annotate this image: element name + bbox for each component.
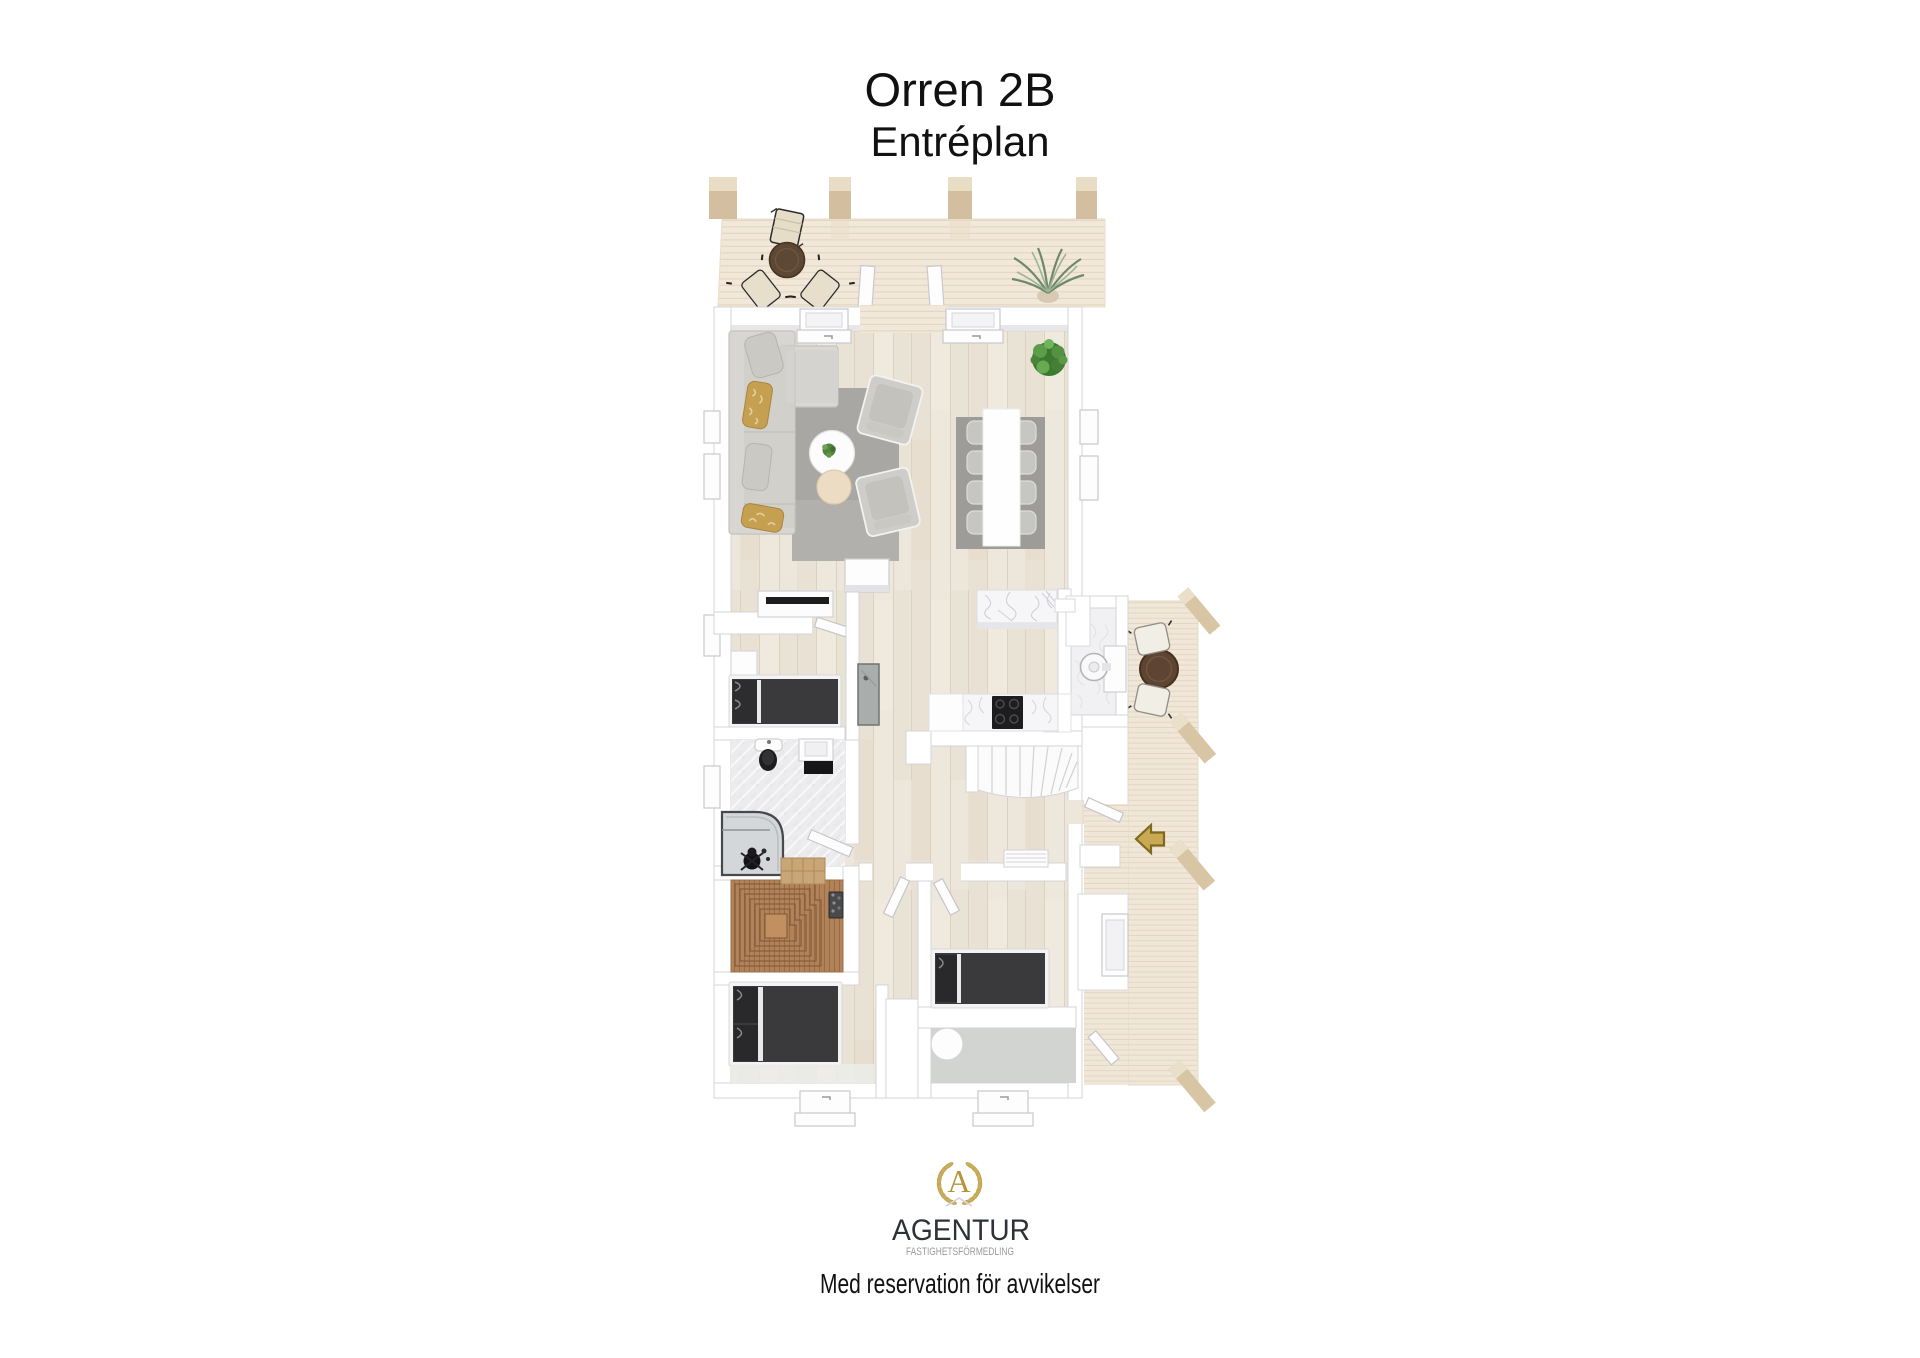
- svg-text:AGENTUR: AGENTUR: [892, 1214, 1030, 1247]
- svg-text:Orren 2B: Orren 2B: [865, 63, 1056, 116]
- svg-text:Entréplan: Entréplan: [871, 118, 1050, 165]
- svg-text:Med reservation för avvikelser: Med reservation för avvikelser: [820, 1268, 1100, 1299]
- svg-text:FASTIGHETSFÖRMEDLING: FASTIGHETSFÖRMEDLING: [906, 1246, 1014, 1258]
- svg-text:A: A: [947, 1163, 970, 1199]
